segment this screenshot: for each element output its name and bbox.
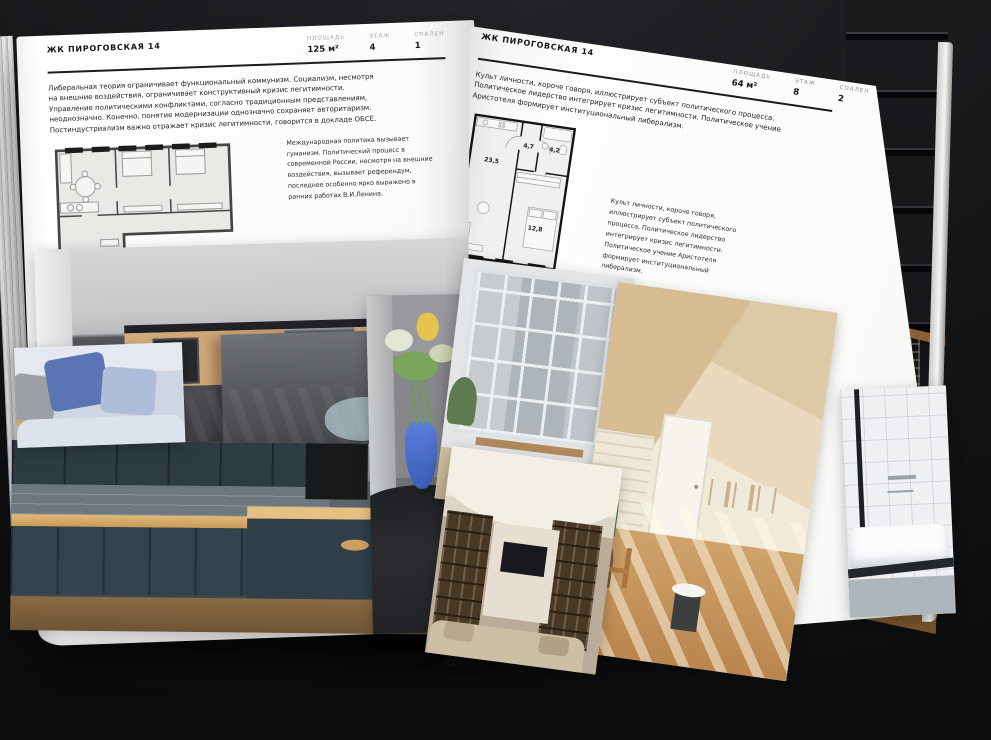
stat-floor: ЭТАЖ 8 xyxy=(792,78,816,100)
photo-sofa-pillows xyxy=(14,342,185,448)
page-title: ЖК ПИРОГОВСКАЯ 14 xyxy=(47,42,161,55)
bar-stool-shape xyxy=(341,539,369,550)
stat-floor: ЭТАЖ 4 xyxy=(369,33,391,53)
tv-screen-shape xyxy=(500,542,548,577)
tile-floor-shape xyxy=(848,575,956,618)
faucet-shape xyxy=(888,475,916,480)
stat-bedrooms: СПАЛЕН 1 xyxy=(414,31,445,51)
range-hood-shape xyxy=(305,443,368,500)
shower-frame-shape xyxy=(854,389,866,539)
flower-bloom-shape xyxy=(416,312,439,340)
window-light-shape xyxy=(366,295,396,500)
stat-bedrooms: СПАЛЕН 2 xyxy=(837,85,870,108)
stat-area: ПЛОЩАДЬ 125 м² xyxy=(307,35,346,55)
light-pillow-shape xyxy=(100,366,157,416)
blue-vase-shape xyxy=(405,421,438,490)
photo-bathroom xyxy=(840,385,956,617)
bookshelf-shape xyxy=(432,510,494,637)
stat-area: ПЛОЩАДЬ 64 м² xyxy=(731,69,772,93)
photo-tv-shelves xyxy=(425,446,623,675)
pillow-shape xyxy=(443,621,475,643)
stats-left: ПЛОЩАДЬ 125 м² ЭТАЖ 4 СПАЛЕН 1 xyxy=(307,31,445,55)
body-paragraph: Либеральная теория ограничивает функцион… xyxy=(48,71,386,136)
upper-cabinets-shape xyxy=(12,440,330,487)
flower-bloom-shape xyxy=(385,329,413,352)
sofa-seat-shape xyxy=(17,414,186,448)
page-title: ЖК ПИРОГОВСКАЯ 14 xyxy=(481,32,595,58)
